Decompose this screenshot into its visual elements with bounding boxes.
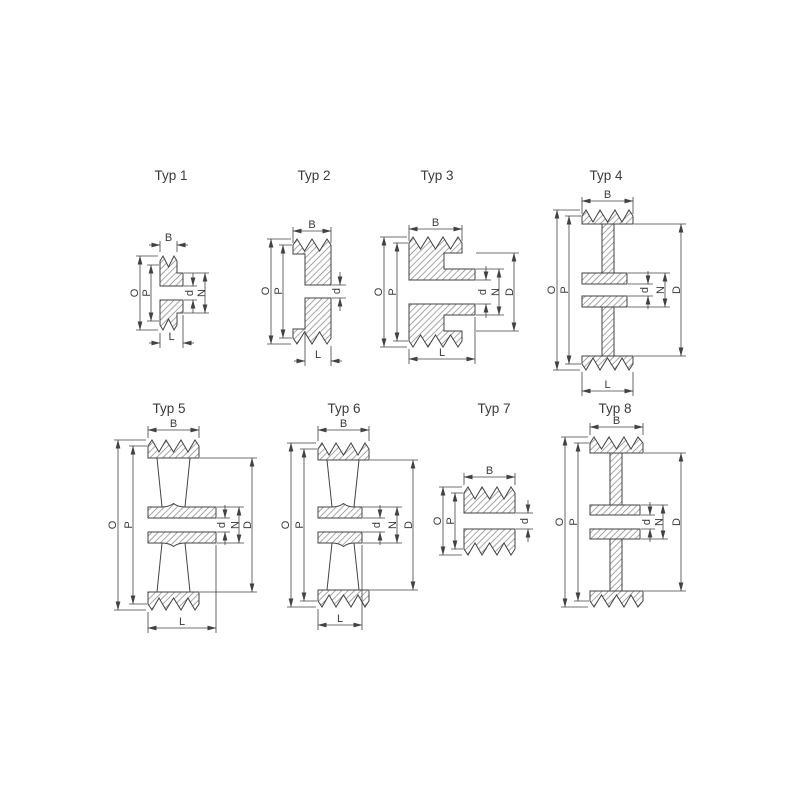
dim-label-O: O <box>107 520 119 529</box>
dim-d: d <box>216 505 230 545</box>
dim-D: D <box>200 458 257 592</box>
dim-label-B: B <box>165 232 172 244</box>
dim-label-D: D <box>403 521 415 529</box>
dim-label-L: L <box>179 616 185 628</box>
rim-top <box>590 437 643 453</box>
body-upper <box>160 256 183 286</box>
dim-d: d <box>363 505 385 545</box>
dim-label-B: B <box>432 217 439 229</box>
dim-label-D: D <box>671 518 683 526</box>
dim-label-B: B <box>486 465 493 477</box>
dim-label-N: N <box>387 521 399 529</box>
web-line <box>157 458 190 507</box>
figure-title: Typ 2 <box>297 168 330 183</box>
figure-title: Typ 5 <box>152 401 185 416</box>
hub-upper <box>590 505 640 515</box>
pulley-catalog-page: Typ 1 B O P d N <box>0 0 800 800</box>
figure-typ2: Typ 2 B O P d L <box>260 168 346 366</box>
dim-label-N: N <box>196 289 208 297</box>
hub-lower <box>590 529 640 539</box>
hub-upper <box>318 504 362 519</box>
dim-label-O: O <box>129 288 141 297</box>
dim-B: B <box>590 415 643 435</box>
figure-title: Typ 7 <box>477 401 510 416</box>
dim-label-O: O <box>280 520 292 529</box>
pulley-diagram-canvas: Typ 1 B O P d N <box>0 0 800 800</box>
dim-label-d: d <box>216 522 228 528</box>
web-lower <box>602 307 614 356</box>
dim-label-P: P <box>559 286 571 293</box>
dim-label-P: P <box>141 289 153 296</box>
dim-d: d <box>331 272 346 311</box>
dim-P: P <box>568 443 589 601</box>
body-lower <box>409 304 475 347</box>
dim-P: P <box>294 449 317 601</box>
figure-title: Typ 4 <box>589 168 623 183</box>
web-lower <box>610 539 622 591</box>
dim-label-d: d <box>641 519 653 525</box>
rim-bottom <box>318 590 369 607</box>
hub-upper <box>148 504 216 519</box>
dim-label-d: d <box>639 287 651 293</box>
dim-label-D: D <box>242 521 254 529</box>
web-upper <box>602 224 614 273</box>
dim-label-B: B <box>170 418 177 430</box>
rim-bottom <box>148 592 199 610</box>
web-line <box>327 460 359 507</box>
dim-B: B <box>318 418 369 441</box>
hub-upper <box>582 273 627 284</box>
dim-P: P <box>141 265 159 321</box>
body-lower <box>464 529 515 555</box>
dim-L: L <box>582 372 633 396</box>
figure-title: Typ 3 <box>420 168 453 183</box>
hub-lower <box>582 296 627 307</box>
dim-label-O: O <box>554 517 566 526</box>
rim-bottom <box>582 356 633 370</box>
dim-label-B: B <box>340 418 347 430</box>
hub-lower <box>318 532 362 547</box>
dim-label-O: O <box>546 285 558 294</box>
rim-bottom <box>590 591 643 607</box>
body-lower <box>293 298 331 344</box>
dim-B: B <box>148 418 199 438</box>
dim-label-N: N <box>230 521 242 529</box>
dim-label-L: L <box>315 349 321 361</box>
dim-label-d: d <box>184 290 196 296</box>
dim-label-L: L <box>439 347 445 359</box>
dim-P: P <box>445 493 463 549</box>
dim-label-P: P <box>445 517 457 524</box>
dim-label-d: d <box>519 518 531 524</box>
dim-P: P <box>559 216 581 364</box>
dim-label-B: B <box>604 189 611 201</box>
figure-typ1: Typ 1 B O P d N <box>129 168 209 348</box>
dim-P: P <box>387 243 408 341</box>
figure-title: Typ 1 <box>154 168 187 183</box>
figure-title: Typ 6 <box>327 401 360 416</box>
dim-P: P <box>273 245 292 338</box>
dim-B: B <box>464 465 515 485</box>
body-upper <box>409 237 475 280</box>
figure-typ6: Typ 6 B O P d N <box>280 401 418 630</box>
dim-label-P: P <box>568 518 580 525</box>
dim-P: P <box>123 446 147 604</box>
figure-title: Typ 8 <box>598 401 631 416</box>
dim-label-N: N <box>490 288 502 296</box>
dim-label-d: d <box>477 289 489 295</box>
figure-typ4: Typ 4 B O P d N <box>546 168 686 396</box>
dim-B: B <box>409 217 462 241</box>
body-upper <box>464 487 515 513</box>
dim-label-L: L <box>604 379 610 391</box>
dim-label-L: L <box>337 613 343 625</box>
dim-label-D: D <box>671 286 683 294</box>
dim-label-B: B <box>613 415 620 427</box>
rim-top <box>582 210 633 224</box>
web-upper <box>610 453 622 505</box>
figure-typ7: Typ 7 B O P d <box>432 401 533 555</box>
dim-label-D: D <box>504 288 516 296</box>
dim-label-L: L <box>168 331 174 343</box>
rim-top <box>148 440 199 458</box>
hub-lower <box>148 532 216 547</box>
rim-top <box>318 443 369 460</box>
dim-label-P: P <box>123 521 135 528</box>
dim-B: B <box>149 232 188 252</box>
dim-label-d: d <box>331 288 343 294</box>
dim-label-O: O <box>373 287 385 296</box>
dim-label-P: P <box>387 288 399 295</box>
dim-label-P: P <box>273 287 285 294</box>
dim-label-O: O <box>432 516 444 525</box>
figure-typ8: Typ 8 B O P d N <box>554 401 686 607</box>
dim-L: L <box>148 545 216 633</box>
dim-B: B <box>582 189 633 214</box>
dim-label-P: P <box>294 521 306 528</box>
dim-d: d <box>476 266 491 318</box>
figure-typ5: Typ 5 B O P d N <box>107 401 257 633</box>
dim-label-d: d <box>371 522 383 528</box>
dim-label-B: B <box>308 219 315 231</box>
dim-d: d <box>516 500 533 542</box>
dim-d: d <box>628 271 653 309</box>
web-line <box>327 543 359 590</box>
figure-typ3: Typ 3 B O P d N <box>373 168 519 364</box>
web-line <box>157 543 190 592</box>
dim-label-N: N <box>654 518 666 526</box>
dim-label-O: O <box>260 286 272 295</box>
body-lower <box>160 300 183 330</box>
body-upper <box>293 239 331 285</box>
dim-label-N: N <box>655 286 667 294</box>
